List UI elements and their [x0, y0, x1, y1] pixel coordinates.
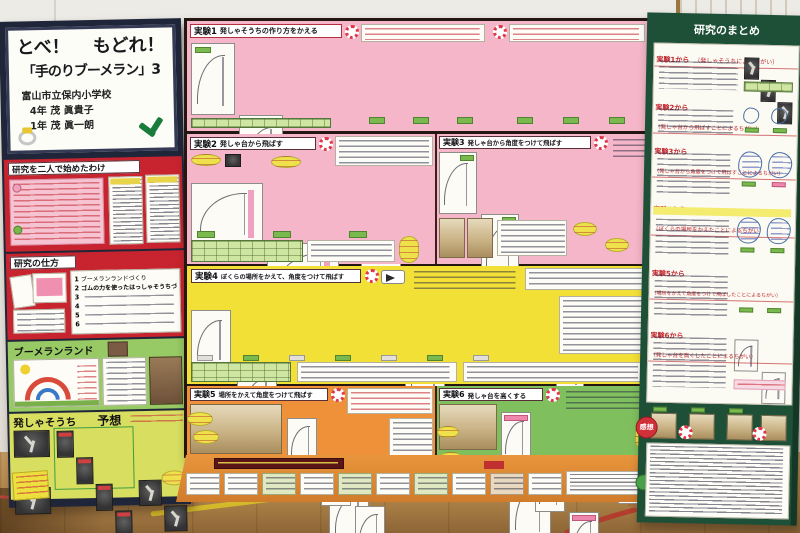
label-tab	[742, 181, 756, 186]
experiment-4-section: 実験4 ぼくらの場所をかえて、角度をつけて飛ばす	[187, 266, 651, 384]
flap-card	[186, 473, 220, 495]
summary-title: 研究のまとめ	[647, 20, 800, 39]
flap-card	[566, 471, 646, 495]
newspaper-clipping	[145, 174, 180, 243]
section-reason: 研究を二人で始めたわけ	[4, 156, 184, 252]
label-tab	[517, 117, 533, 124]
center-display-board: 実験1 発しゃそうちの作り方をかえる	[184, 18, 654, 458]
summary-bullets	[652, 216, 731, 258]
trajectory-sketch-card	[191, 43, 235, 115]
section-boomerang-land: ブーメランランド	[8, 338, 187, 412]
land-header: ブーメランランド	[14, 342, 94, 359]
land-photo	[149, 356, 183, 405]
label-tab	[381, 355, 397, 361]
pink-mini-note	[733, 379, 785, 390]
label-tab	[273, 231, 291, 238]
trajectory-sketch-card	[569, 512, 599, 533]
trajectory-sketch-card	[355, 506, 385, 533]
summary-mini-photo	[744, 57, 759, 79]
title-word-modore: もどれ！	[93, 31, 165, 58]
experiment-3-title: 発しゃ台から角度をつけて飛ばす	[468, 138, 562, 147]
small-photo	[108, 341, 128, 356]
author-2-name: 茂 眞一朗	[50, 120, 94, 132]
left-display-board: とべ！ もどれ！ 「手のりブーメラン」3 富山市立保内小学校 4年 茂 眞貴子 …	[0, 18, 191, 508]
experiment-1-header: 実験1 発しゃそうちの作り方をかえる	[190, 24, 342, 38]
impression-photo	[726, 414, 753, 441]
method-item-row: 6	[75, 317, 177, 328]
flap-red-label	[484, 461, 504, 469]
flap-card	[224, 473, 258, 495]
land-drawing	[13, 358, 100, 408]
label-tab	[691, 407, 705, 412]
flap-card	[300, 473, 334, 495]
gym-photo-scene: とべ！ もどれ！ 「手のりブーメラン」3 富山市立保内小学校 4年 茂 眞貴子 …	[0, 0, 800, 533]
experiment-photo	[96, 484, 114, 511]
label-tab	[349, 231, 367, 238]
method-number: 4	[75, 302, 80, 310]
experiment-photo	[115, 510, 133, 533]
setup-photo	[439, 218, 465, 258]
trajectory-sketch-card	[501, 412, 531, 462]
sticky-note	[271, 156, 301, 168]
summary-bullets	[655, 106, 736, 136]
experiment-4-header: 実験4 ぼくらの場所をかえて、角度をつけて飛ばす	[191, 269, 361, 283]
experiment-2-label: 実験2	[194, 138, 217, 150]
label-tab	[773, 128, 787, 133]
summary-bullets	[650, 334, 729, 390]
sticky-note	[187, 412, 213, 426]
data-table	[191, 118, 331, 128]
prediction-photo-grid	[53, 426, 134, 490]
sticky-note	[573, 222, 597, 236]
center-board-bottom-flap	[176, 455, 662, 502]
flap-card	[376, 473, 410, 495]
label-tab	[473, 355, 489, 361]
experiment-photo	[76, 457, 94, 484]
yellow-corner-note	[12, 470, 50, 501]
flap-card	[338, 473, 372, 495]
launcher-photo	[139, 480, 163, 506]
handwritten-note	[509, 24, 645, 42]
flap-card	[528, 473, 562, 495]
flap-card	[262, 473, 296, 495]
handwritten-note	[525, 268, 647, 290]
handwritten-note	[307, 240, 395, 262]
label-tab	[729, 408, 743, 413]
handwritten-note	[497, 220, 567, 256]
label-tab	[563, 117, 579, 124]
flap-card	[490, 473, 524, 495]
label-tab	[653, 407, 667, 412]
experiment-3-header: 実験3 発しゃ台から角度をつけて飛ばす	[439, 136, 591, 149]
prediction-note	[127, 411, 183, 424]
reason-note	[9, 178, 104, 246]
launcher-photo	[13, 430, 50, 458]
setup-photo	[467, 218, 493, 258]
experiment-6-title: 発しゃ台を高くする	[468, 390, 527, 400]
summary-bullets	[654, 150, 733, 196]
experiment-6-label: 実験6	[443, 389, 465, 400]
experiment-3-section: 実験3 発しゃ台から角度をつけて飛ばす	[437, 134, 651, 264]
ring-icon	[18, 130, 36, 145]
experiment-3-label: 実験3	[443, 137, 465, 148]
label-tab	[772, 182, 786, 187]
label-tab	[767, 308, 781, 313]
sticky-note	[399, 236, 419, 263]
title-poster: とべ！ もどれ！ 「手のりブーメラン」3 富山市立保内小学校 4年 茂 眞貴子 …	[5, 24, 178, 154]
sticky-note	[193, 430, 219, 444]
land-note	[102, 357, 147, 406]
flap-title-strip	[214, 458, 344, 469]
label-tab	[197, 231, 215, 238]
section-method: 研究の仕方 1 ブーメランランドづくり 2 ゴムの力を使ったはっしゃそうちづくり…	[6, 250, 186, 340]
experiment-photo	[225, 154, 241, 167]
handwritten-note	[563, 388, 647, 412]
handwritten-note	[347, 388, 433, 414]
data-table	[191, 362, 291, 382]
label-tab	[745, 127, 759, 132]
launcher-photo	[164, 505, 188, 531]
impressions-text-block	[645, 442, 791, 519]
method-photo	[32, 273, 67, 304]
sticky-note	[605, 238, 629, 252]
handwritten-note	[361, 24, 485, 42]
experiment-2-title: 発しゃ台から飛ばす	[220, 139, 283, 149]
title-word-tobe: とべ！	[16, 32, 70, 59]
method-number: 5	[75, 311, 80, 319]
handwritten-note	[610, 136, 648, 158]
summary-mini-table	[744, 81, 793, 92]
flower-sticker	[365, 269, 379, 283]
method-number: 3	[75, 293, 80, 301]
summary-bullets	[651, 272, 730, 320]
reason-header: 研究を二人で始めたわけ	[8, 160, 140, 176]
flower-sticker	[345, 25, 359, 39]
label-tab	[740, 247, 754, 252]
experiment-5-label: 実験5	[194, 389, 216, 400]
experiment-2-header: 実験2 発しゃ台から飛ばす	[190, 137, 316, 150]
flap-card	[414, 473, 448, 495]
experiment-4-label: 実験4	[195, 270, 218, 282]
method-number: 6	[75, 320, 80, 328]
poster-title-line2: 「手のりブーメラン」3	[9, 58, 173, 81]
flower-sticker	[331, 388, 345, 402]
label-tab	[243, 355, 259, 361]
label-tab	[369, 117, 385, 124]
experiment-5-title: 場所をかえて角度をつけて飛ばす	[219, 390, 313, 399]
method-number: 1	[74, 275, 79, 283]
summary-paper: 実験1から （発しゃそうちによるちがい） 実験2から （発しゃ台から飛ばすことに…	[646, 43, 800, 406]
data-table	[191, 240, 303, 262]
boomerang-doodle	[767, 218, 792, 244]
flower-sticker	[546, 388, 560, 402]
method-list-paper: 1 ブーメランランドづくり 2 ゴムの力を使ったはっしゃそうちづくり 3 4 5	[70, 268, 181, 334]
experiment-1-label: 実験1	[194, 25, 217, 37]
experiment-6-header: 実験6 発しゃ台を高くする	[439, 388, 543, 401]
method-photo-caption	[13, 309, 65, 334]
label-tab	[739, 307, 753, 312]
handwritten-note	[297, 362, 457, 382]
flower-sticker	[594, 136, 608, 150]
impression-photo	[688, 413, 715, 440]
boomerang-doodle	[737, 217, 762, 243]
method-header: 研究の仕方	[10, 255, 76, 269]
sticky-note	[191, 154, 221, 166]
method-number: 2	[74, 284, 79, 292]
handwritten-note	[463, 362, 647, 382]
experiment-photo	[57, 430, 75, 457]
handwritten-note	[559, 296, 647, 354]
author-1-grade: 4年	[30, 106, 47, 117]
handwriting-lines	[82, 318, 178, 327]
boomerang-icon	[136, 115, 167, 142]
experiment-2-section: 実験2 発しゃ台から飛ばす	[187, 134, 437, 264]
handwritten-note	[335, 136, 433, 166]
experiment-5-header: 実験5 場所をかえて角度をつけて飛ばす	[190, 388, 328, 401]
label-tab	[609, 117, 625, 124]
sticky-note	[437, 426, 459, 438]
experiment-1-title: 発しゃそうちの作り方をかえる	[220, 26, 318, 36]
pointing-hand-sticker	[381, 270, 405, 284]
flower-sticker	[319, 137, 333, 151]
label-tab	[770, 248, 784, 253]
newspaper-clipping	[108, 176, 143, 245]
experiment-4-title: ぼくらの場所をかえて、角度をつけて飛ばす	[221, 272, 344, 281]
label-tab	[457, 117, 473, 124]
summary-bullets	[656, 58, 741, 92]
experiment-1-section: 実験1 発しゃそうちの作り方をかえる	[187, 21, 651, 131]
label-tab	[197, 355, 213, 361]
trajectory-sketch-card	[439, 152, 477, 214]
flower-sticker	[493, 25, 507, 39]
label-tab	[335, 355, 351, 361]
flap-card	[452, 473, 486, 495]
label-tab	[413, 117, 429, 124]
handwritten-note	[411, 268, 519, 292]
poster-title-line1: とべ！ もどれ！	[8, 27, 173, 59]
author-2-grade: 1年	[30, 121, 47, 132]
label-tab	[289, 355, 305, 361]
summary-board: 研究のまとめ 実験1から （発しゃそうちによるちがい） 実験2から （発しゃ台か…	[637, 12, 800, 525]
label-tab	[427, 355, 443, 361]
